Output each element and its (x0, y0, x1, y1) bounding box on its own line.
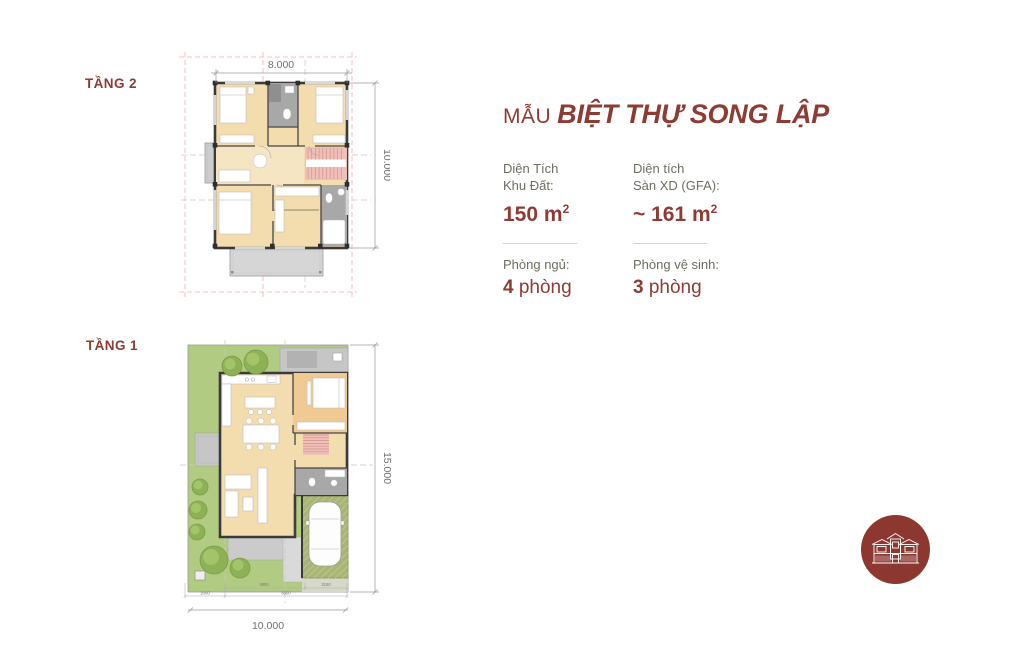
floor1-title: TẦNG 1 (86, 338, 138, 353)
floor1-plan: 4800 3190 2000 8000 10.000 15.000 (175, 335, 400, 640)
spec-label-line: Diện tích (633, 161, 763, 178)
spec-value: ~ 161 m2 (633, 202, 763, 227)
floor2-width-dim: 8.000 (268, 59, 294, 71)
spec-label-line: Diện Tích (503, 161, 633, 178)
car-icon (306, 502, 344, 566)
room-label: Phòng ngủ: (503, 257, 633, 272)
floor1-width-dim: 10.000 (252, 620, 284, 632)
spec-land-area: Diện Tích Khu Đất: 150 m2 Phòng ngủ: 4 p… (503, 161, 633, 299)
garage (302, 493, 348, 578)
sub-dim: 2000 (200, 591, 210, 596)
floor2-height-dim: 10.000 (381, 149, 390, 181)
shed (195, 571, 205, 580)
room-value: 4 phòng (503, 277, 633, 299)
duplex-villa-house-icon (861, 515, 930, 584)
spec-gfa: Diện tích Sàn XD (GFA): ~ 161 m2 Phòng v… (633, 161, 763, 299)
divider (633, 243, 707, 244)
room-value: 3 phòng (633, 277, 763, 299)
sub-dim: 8000 (281, 591, 291, 596)
sub-dim: 4800 (259, 582, 269, 587)
floor2-plan: 8.000 10.000 (175, 40, 390, 308)
spec-label-line: Khu Đất: (503, 178, 633, 195)
title-main: BIỆT THỰ SONG LẬP (557, 99, 829, 130)
divider (503, 243, 577, 244)
room-label: Phòng vệ sinh: (633, 257, 763, 272)
spec-label-line: Sàn XD (GFA): (633, 178, 763, 195)
floor1-height-dim: 15.000 (381, 452, 393, 484)
title-prefix: MẪU (503, 105, 551, 129)
shower (269, 84, 281, 102)
sub-dim: 3190 (321, 582, 331, 587)
spec-value: 150 m2 (503, 202, 633, 227)
page-title: MẪU BIỆT THỰ SONG LẬP (503, 99, 923, 130)
info-panel: MẪU BIỆT THỰ SONG LẬP Diện Tích Khu Đất:… (503, 99, 923, 299)
villa-floorplan-sheet: TẦNG 2 TẦNG 1 (0, 0, 1024, 659)
stairs (303, 433, 329, 455)
floor2-title: TẦNG 2 (85, 76, 137, 91)
brand-logo (861, 515, 930, 584)
